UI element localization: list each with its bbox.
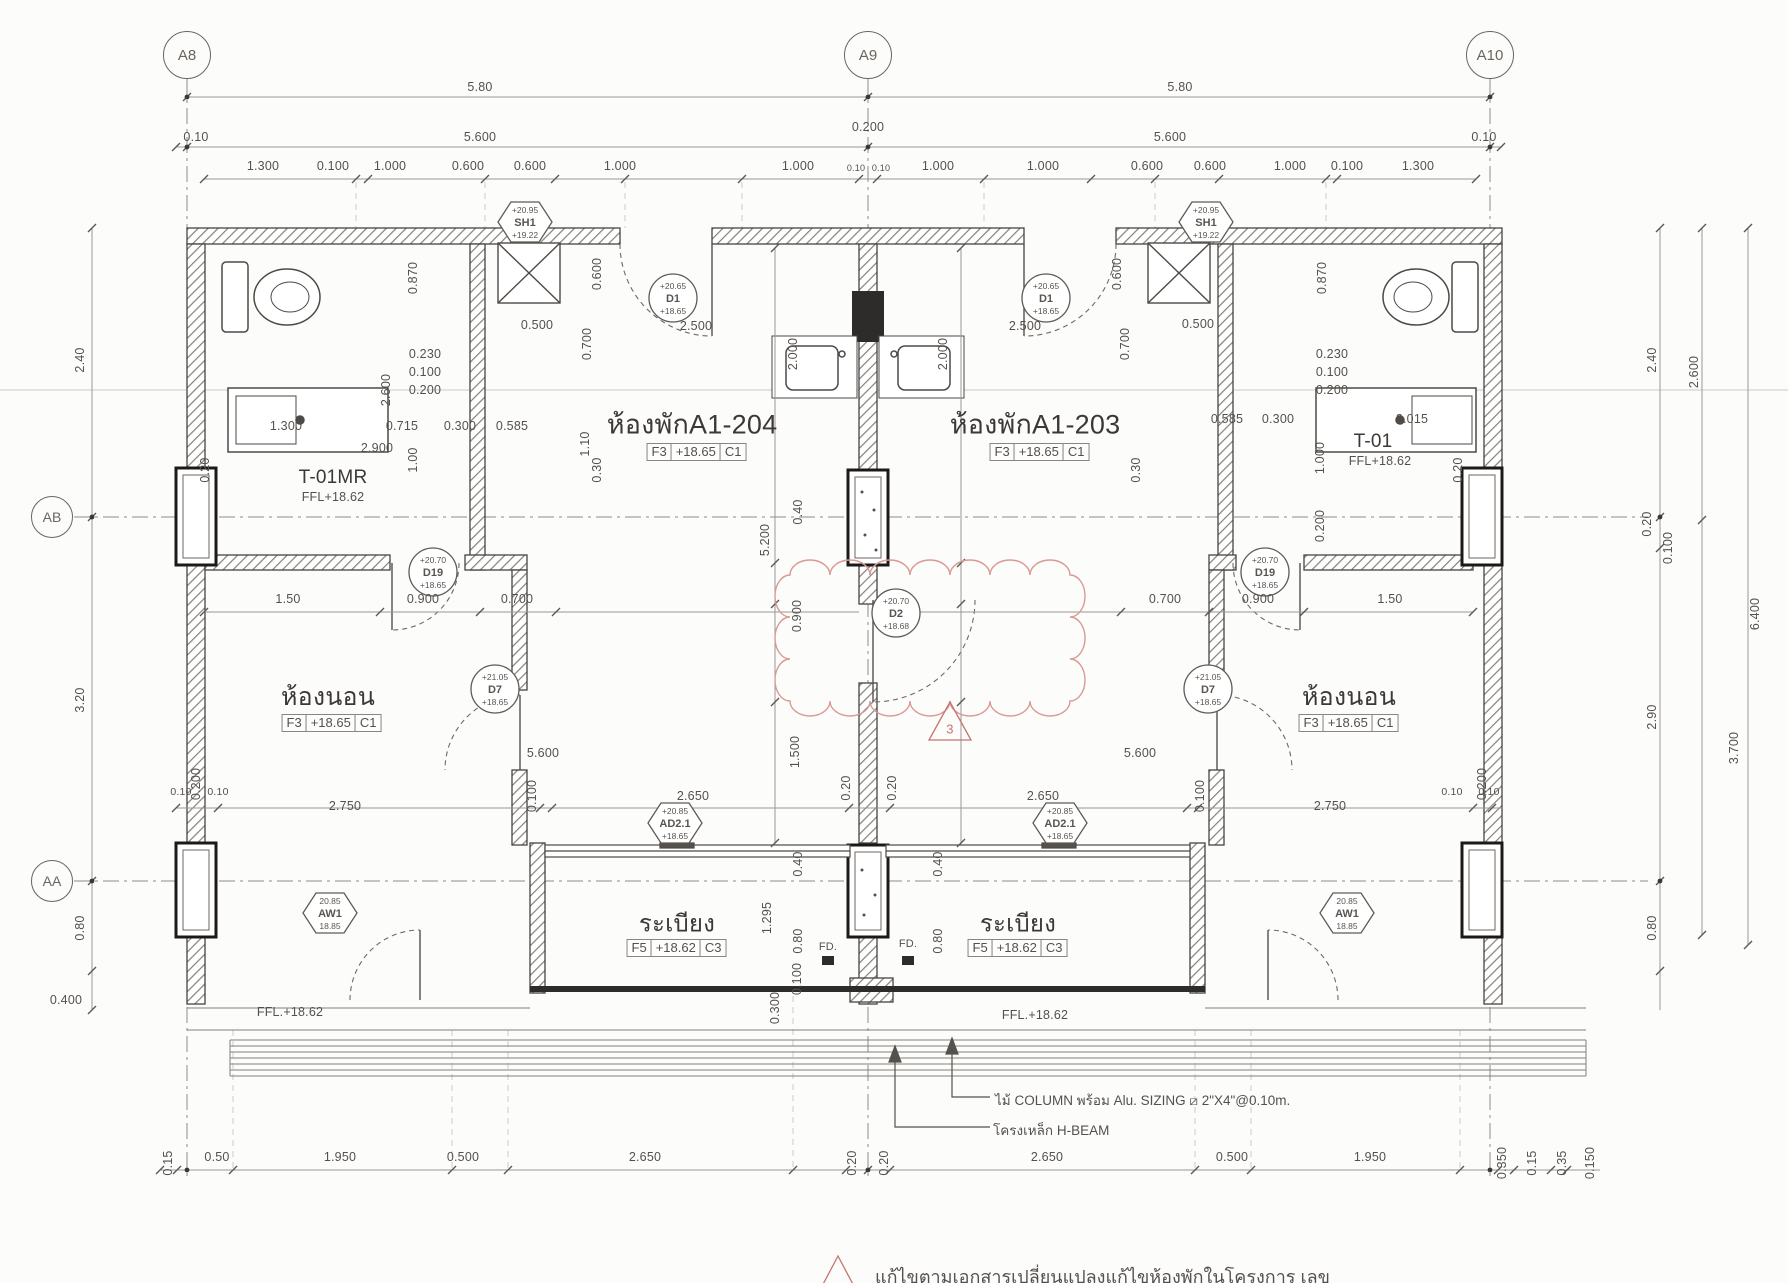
tag-code-D7: D7 (1201, 684, 1215, 696)
dim-label: 2.750 (329, 799, 361, 813)
dim-label: 0.600 (514, 159, 546, 173)
dim-label: 2.600 (379, 374, 393, 406)
tag-elevation-bottom: 18.85 (319, 921, 340, 931)
dim-label: 0.700 (1118, 328, 1132, 360)
dim-label: 3.20 (73, 687, 87, 712)
tag-elevation-bottom: +18.65 (660, 306, 686, 316)
dim-label: 1.000 (604, 159, 636, 173)
tag-elevation-bottom: +18.65 (1033, 306, 1059, 316)
tag-elevation-bottom: +19.22 (1193, 230, 1219, 240)
grid-bubble-AB: AB (31, 496, 73, 538)
grid-bubble-A8: A8 (163, 31, 211, 79)
floor-tag-cell: +18.65 (1323, 714, 1373, 732)
dim-label: 2.650 (1027, 789, 1059, 803)
room-level-label: FFL+18.62 (302, 490, 365, 504)
grid-bubble-A9: A9 (844, 31, 892, 79)
dim-label: 0.20 (1640, 511, 1654, 536)
tag-elevation-top: +20.65 (1033, 281, 1059, 291)
dim-label: 1.295 (760, 902, 774, 934)
floor-tag-cell: +18.65 (671, 443, 721, 461)
dim-label: 0.585 (1211, 412, 1243, 426)
room-label: ห้องพักA1-203 (950, 403, 1121, 446)
dim-label: 1.500 (788, 736, 802, 768)
floorplan-sheet: ไม้ COLUMN พร้อม Alu. SIZING ⧄ 2"X4"@0.1… (0, 0, 1788, 1283)
dim-label: 0.700 (501, 592, 533, 606)
dim-label: 0.600 (1194, 159, 1226, 173)
tag-elevation-bottom: 18.85 (1336, 921, 1357, 931)
dim-label: 0.700 (580, 328, 594, 360)
tag-elevation-bottom: +18.68 (883, 621, 909, 631)
dim-label: 1.00 (406, 447, 420, 472)
room-label: ห้องนอน (281, 677, 375, 717)
floor-tag-box: F3+18.65C1 (1300, 714, 1399, 732)
grid-bubble-AA: AA (31, 860, 73, 902)
dim-label: 0.200 (1316, 383, 1348, 397)
floor-tag-cell: C1 (1063, 443, 1090, 461)
floor-tag-cell: F3 (647, 443, 672, 461)
dim-label: 2.000 (786, 338, 800, 370)
dim-label: 0.400 (50, 993, 82, 1007)
dim-label: 3.700 (1727, 732, 1741, 764)
dim-label: 2.500 (1009, 319, 1041, 333)
dim-label: 0.870 (1315, 262, 1329, 294)
tag-code-D19: D19 (423, 567, 443, 579)
tag-elevation-top: 20.85 (1336, 896, 1357, 906)
floor-tag-cell: C3 (700, 939, 727, 957)
dim-label: 0.20 (845, 1150, 859, 1175)
dim-label: 2.650 (1031, 1150, 1063, 1164)
dim-label: 0.20 (839, 775, 853, 800)
tag-elevation-bottom: +18.65 (420, 580, 446, 590)
room-label: T-01 (1354, 431, 1393, 453)
dim-label: 5.80 (467, 80, 492, 94)
tag-code-SH1: SH1 (1195, 217, 1216, 229)
tag-code-D7: D7 (488, 684, 502, 696)
dim-label: 0.20 (198, 457, 212, 482)
dim-label: 0.10 (1441, 786, 1462, 798)
floor-tag-cell: +18.65 (1014, 443, 1064, 461)
tag-code-D19: D19 (1255, 567, 1275, 579)
dim-label: 1.950 (1354, 1150, 1386, 1164)
tag-elevation-bottom: +18.65 (1195, 697, 1221, 707)
dim-label: 0.10 (847, 163, 865, 173)
dim-label: 0.40 (931, 851, 945, 876)
dim-label: 2.500 (680, 319, 712, 333)
floor-tag-cell: F5 (627, 939, 652, 957)
dim-label: 2.600 (1687, 356, 1701, 388)
dim-label: 0.20 (885, 775, 899, 800)
dim-label: 0.10 (1471, 130, 1496, 144)
dim-label: 1.000 (782, 159, 814, 173)
dim-label: 1.10 (578, 431, 592, 456)
dim-label: 0.600 (1131, 159, 1163, 173)
tag-elevation-bottom: +19.22 (512, 230, 538, 240)
dim-label: 5.600 (464, 130, 496, 144)
tag-code-AD2.1: AD2.1 (659, 818, 690, 830)
dim-label: 1.950 (324, 1150, 356, 1164)
dim-label: 0.600 (1110, 258, 1124, 290)
dim-label: 0.230 (409, 347, 441, 361)
dim-label: 0.500 (521, 318, 553, 332)
dim-label: 0.200 (1313, 510, 1327, 542)
dim-label: 1.50 (1377, 592, 1402, 606)
floor-tag-cell: +18.65 (306, 714, 356, 732)
dim-label: 0.40 (791, 851, 805, 876)
dim-label: 0.100 (317, 159, 349, 173)
dim-label: 0.900 (1242, 592, 1274, 606)
revision-note: แก้ไขตามเอกสารเปลี่ยนแปลงแก้ไขห้องพักในโ… (875, 1262, 1330, 1283)
room-label: ระเบียง (639, 904, 715, 943)
dim-label: 1.300 (270, 419, 302, 433)
dim-label: 0.80 (931, 928, 945, 953)
dim-label: 0.700 (1149, 592, 1181, 606)
tag-code-AD2.1: AD2.1 (1044, 818, 1075, 830)
text-label: FD. (899, 938, 917, 950)
dim-label: 1.000 (922, 159, 954, 173)
floor-tag-box: F3+18.65C1 (283, 714, 382, 732)
tag-elevation-top: +20.65 (660, 281, 686, 291)
dim-label: 2.750 (1314, 799, 1346, 813)
text-label: FFL.+18.62 (1002, 1008, 1068, 1022)
dim-label: 0.500 (1216, 1150, 1248, 1164)
dim-label: 0.900 (790, 600, 804, 632)
dim-label: 0.300 (1262, 412, 1294, 426)
dim-label: 1.000 (374, 159, 406, 173)
dim-label: 0.50 (204, 1150, 229, 1164)
floor-tag-cell: C1 (720, 443, 747, 461)
room-label: T-01MR (299, 467, 368, 489)
dim-label: 0.300 (768, 992, 782, 1024)
dim-label: 0.20 (877, 1150, 891, 1175)
text-label: FFL.+18.62 (257, 1005, 323, 1019)
dim-label: 1.300 (1402, 159, 1434, 173)
dim-label: 5.600 (1154, 130, 1186, 144)
dim-label: 0.150 (1583, 1147, 1597, 1179)
hbeam-note: โครงเหล็ก H-BEAM (993, 1119, 1109, 1141)
dim-label: 0.30 (590, 457, 604, 482)
dim-label: 0.10 (872, 163, 890, 173)
dim-label: 0.40 (791, 499, 805, 524)
dim-label: 0.20 (1451, 457, 1465, 482)
dim-label: 0.80 (73, 915, 87, 940)
floor-tag-cell: F3 (990, 443, 1015, 461)
dim-label: 0.350 (1495, 1147, 1509, 1179)
dim-label: 2.900 (361, 441, 393, 455)
dim-label: 0.500 (1182, 317, 1214, 331)
tag-elevation-top: +20.70 (420, 555, 446, 565)
dim-label: 1.50 (275, 592, 300, 606)
dim-label: 0.300 (444, 419, 476, 433)
room-label: ห้องนอน (1302, 677, 1396, 717)
dim-label: 2.650 (629, 1150, 661, 1164)
floor-tag-cell: C1 (1372, 714, 1399, 732)
labels-layer: ไม้ COLUMN พร้อม Alu. SIZING ⧄ 2"X4"@0.1… (0, 0, 1788, 1283)
floor-tag-box: F3+18.65C1 (648, 443, 747, 461)
tag-code-D2: D2 (889, 608, 903, 620)
dim-label: 0.200 (1475, 768, 1489, 800)
dim-label: 1.000 (1274, 159, 1306, 173)
dim-label: 2.015 (1396, 412, 1428, 426)
room-level-label: FFL+18.62 (1349, 454, 1412, 468)
dim-label: 0.200 (852, 120, 884, 134)
dim-label: 0.100 (409, 365, 441, 379)
dim-label: 0.600 (452, 159, 484, 173)
dim-label: 0.100 (1316, 365, 1348, 379)
dim-label: 0.15 (161, 1150, 175, 1175)
column-note: ไม้ COLUMN พร้อม Alu. SIZING ⧄ 2"X4"@0.1… (995, 1089, 1290, 1111)
dim-label: 0.80 (791, 928, 805, 953)
dim-label: 0.230 (1316, 347, 1348, 361)
tag-elevation-top: +20.85 (662, 806, 688, 816)
dim-label: 0.100 (1331, 159, 1363, 173)
tag-elevation-top: +20.70 (1252, 555, 1278, 565)
room-label: ระเบียง (980, 904, 1056, 943)
dim-label: 2.000 (936, 338, 950, 370)
dim-label: 2.40 (1645, 347, 1659, 372)
floor-tag-cell: +18.62 (651, 939, 701, 957)
room-label: ห้องพักA1-204 (607, 403, 778, 446)
dim-label: 0.30 (1129, 457, 1143, 482)
dim-label: 5.600 (527, 746, 559, 760)
dim-label: 2.650 (677, 789, 709, 803)
floor-tag-cell: C3 (1041, 939, 1068, 957)
tag-elevation-top: +21.05 (1195, 672, 1221, 682)
revision-marker-number: 3 (946, 722, 953, 737)
dim-label: 0.500 (447, 1150, 479, 1164)
dim-label: 0.715 (386, 419, 418, 433)
dim-label: 5.80 (1167, 80, 1192, 94)
dim-label: 0.80 (1645, 915, 1659, 940)
tag-code-SH1: SH1 (514, 217, 535, 229)
tag-elevation-bottom: +18.65 (662, 831, 688, 841)
floor-tag-cell: +18.62 (992, 939, 1042, 957)
grid-bubble-A10: A10 (1466, 31, 1514, 79)
text-label: FD. (819, 941, 837, 953)
floor-tag-cell: F3 (1299, 714, 1324, 732)
tag-code-D1: D1 (666, 293, 680, 305)
floor-tag-cell: F3 (282, 714, 307, 732)
dim-label: 0.100 (525, 780, 539, 812)
dim-label: 0.100 (790, 963, 804, 995)
dim-label: 0.100 (1661, 532, 1675, 564)
tag-elevation-top: +20.85 (1047, 806, 1073, 816)
dim-label: 0.35 (1555, 1150, 1569, 1175)
dim-label: 0.200 (409, 383, 441, 397)
dim-label: 2.90 (1645, 704, 1659, 729)
dim-label: 0.900 (407, 592, 439, 606)
dim-label: 0.585 (496, 419, 528, 433)
dim-label: 0.10 (170, 786, 191, 798)
dim-label: 5.600 (1124, 746, 1156, 760)
tag-elevation-top: +20.95 (1193, 205, 1219, 215)
tag-elevation-top: +21.05 (482, 672, 508, 682)
tag-elevation-bottom: +18.65 (1252, 580, 1278, 590)
floor-tag-box: F3+18.65C1 (991, 443, 1090, 461)
dim-label: 1.000 (1027, 159, 1059, 173)
tag-elevation-top: +20.95 (512, 205, 538, 215)
dim-label: 0.10 (207, 786, 228, 798)
tag-code-D1: D1 (1039, 293, 1053, 305)
floor-tag-cell: C1 (355, 714, 382, 732)
tag-code-AW1: AW1 (318, 908, 342, 920)
tag-elevation-top: 20.85 (319, 896, 340, 906)
dim-label: 1.000 (1313, 442, 1327, 474)
dim-label: 0.10 (183, 130, 208, 144)
floor-tag-cell: F5 (968, 939, 993, 957)
tag-code-AW1: AW1 (1335, 908, 1359, 920)
floor-tag-box: F5+18.62C3 (969, 939, 1068, 957)
dim-label: 0.870 (406, 262, 420, 294)
dim-label: 5.200 (758, 524, 772, 556)
dim-label: 2.40 (73, 347, 87, 372)
dim-label: 0.600 (590, 258, 604, 290)
dim-label: 1.300 (247, 159, 279, 173)
dim-label: 0.15 (1525, 1150, 1539, 1175)
dim-label: 0.100 (1193, 780, 1207, 812)
tag-elevation-bottom: +18.65 (1047, 831, 1073, 841)
tag-elevation-bottom: +18.65 (482, 697, 508, 707)
dim-label: 6.400 (1748, 598, 1762, 630)
floor-tag-box: F5+18.62C3 (628, 939, 727, 957)
tag-elevation-top: +20.70 (883, 596, 909, 606)
